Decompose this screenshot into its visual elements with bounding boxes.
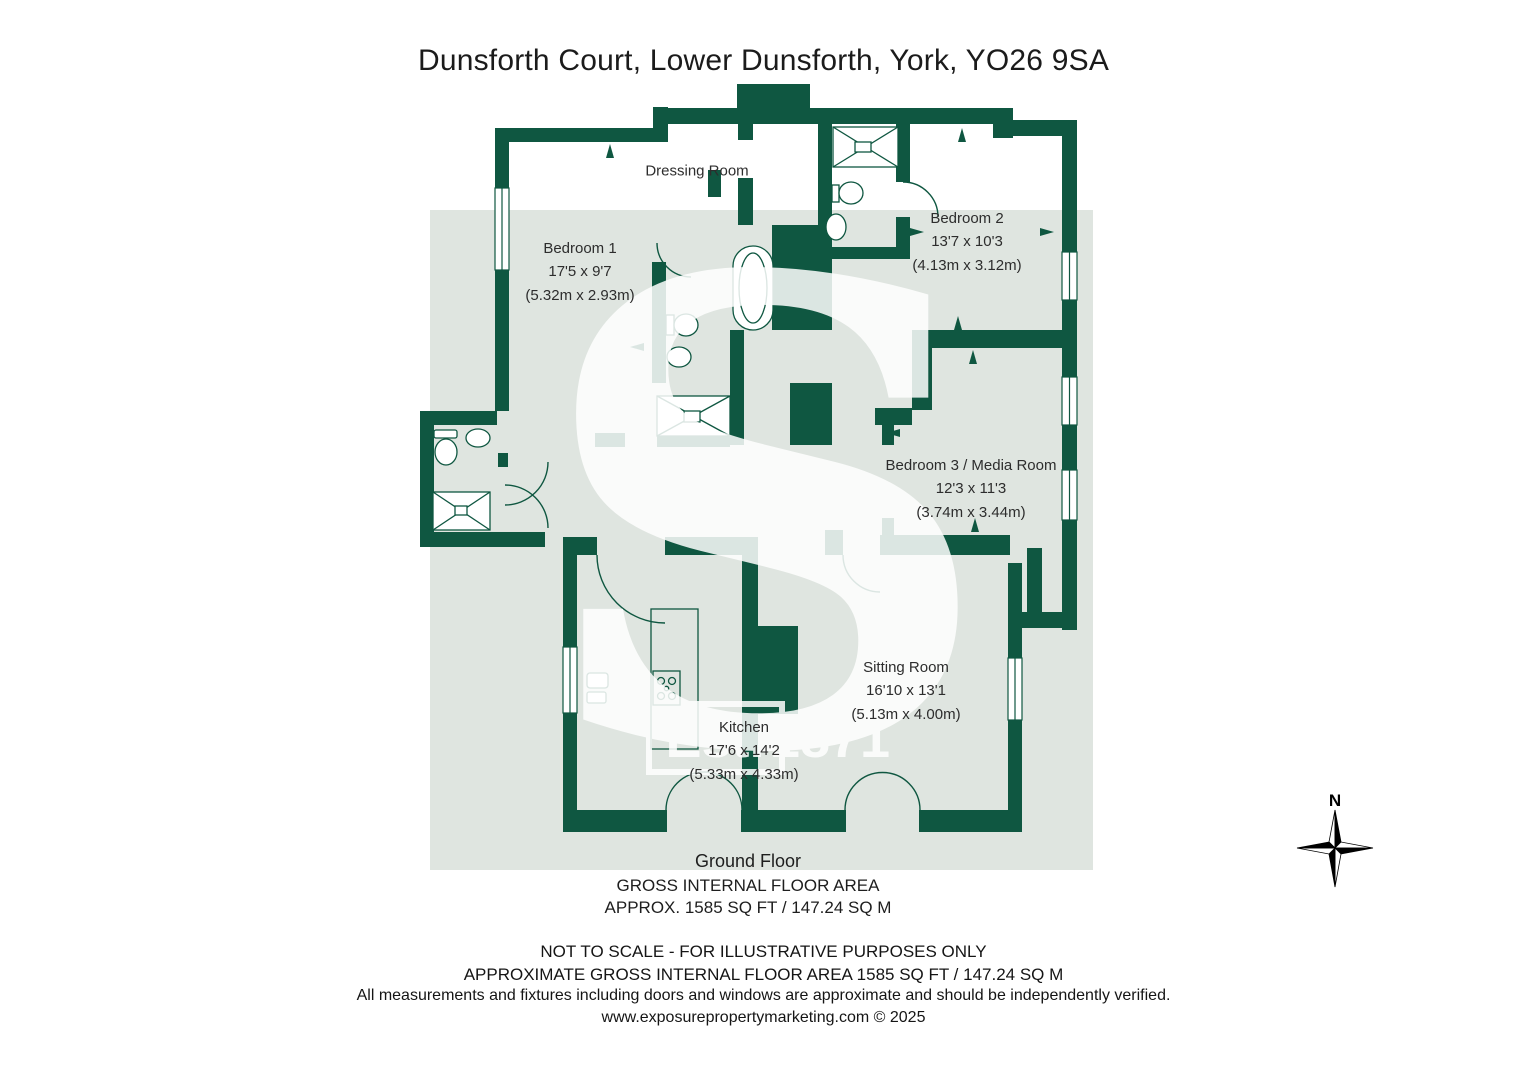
floorplan-page: Dunsforth Court, Lower Dunsforth, York, … (0, 0, 1527, 1080)
room-size-metric: (4.13m x 3.12m) (912, 254, 1021, 277)
room-name: Bedroom 1 (525, 237, 634, 260)
room-label-bedroom1: Bedroom 1 17'5 x 9'7 (5.32m x 2.93m) (525, 237, 634, 307)
room-size-metric: (5.33m x 4.33m) (689, 763, 798, 786)
room-label-bedroom3: Bedroom 3 / Media Room 12'3 x 11'3 (3.74… (886, 454, 1057, 524)
room-size-metric: (3.74m x 3.44m) (886, 501, 1057, 524)
disclaimer-measurements: All measurements and fixtures including … (0, 987, 1527, 1005)
disclaimer-area: APPROXIMATE GROSS INTERNAL FLOOR AREA 15… (0, 965, 1527, 985)
room-name: Dressing Room (645, 159, 748, 182)
shower-left (433, 492, 490, 530)
disclaimer-scale: NOT TO SCALE - FOR ILLUSTRATIVE PURPOSES… (0, 942, 1527, 962)
footer-url: www.exposurepropertymarketing.com © 2025 (0, 1009, 1527, 1027)
room-size-imperial: 12'3 x 11'3 (886, 477, 1057, 500)
room-name: Kitchen (689, 716, 798, 739)
toilet-left (434, 430, 457, 465)
room-size-metric: (5.13m x 4.00m) (851, 703, 960, 726)
area-value: APPROX. 1585 SQ FT / 147.24 SQ M (0, 898, 1496, 918)
floor-label: Ground Floor (0, 851, 1496, 872)
room-label-bedroom2: Bedroom 2 13'7 x 10'3 (4.13m x 3.12m) (912, 207, 1021, 277)
sink-left (466, 429, 490, 447)
compass-rose: N (1297, 791, 1373, 887)
floorplan-drawing: S Est. 1871 N (0, 0, 1527, 1080)
room-name: Bedroom 3 / Media Room (886, 454, 1057, 477)
room-size-metric: (5.32m x 2.93m) (525, 284, 634, 307)
room-size-imperial: 13'7 x 10'3 (912, 230, 1021, 253)
room-label-sitting: Sitting Room 16'10 x 13'1 (5.13m x 4.00m… (851, 656, 960, 726)
room-size-imperial: 17'6 x 14'2 (689, 739, 798, 762)
compass-north-label: N (1329, 791, 1341, 810)
room-name: Sitting Room (851, 656, 960, 679)
room-size-imperial: 17'5 x 9'7 (525, 260, 634, 283)
room-label-dressing: Dressing Room (645, 159, 748, 182)
room-label-kitchen: Kitchen 17'6 x 14'2 (5.33m x 4.33m) (689, 716, 798, 786)
room-name: Bedroom 2 (912, 207, 1021, 230)
room-size-imperial: 16'10 x 13'1 (851, 679, 960, 702)
area-heading: GROSS INTERNAL FLOOR AREA (0, 876, 1496, 896)
